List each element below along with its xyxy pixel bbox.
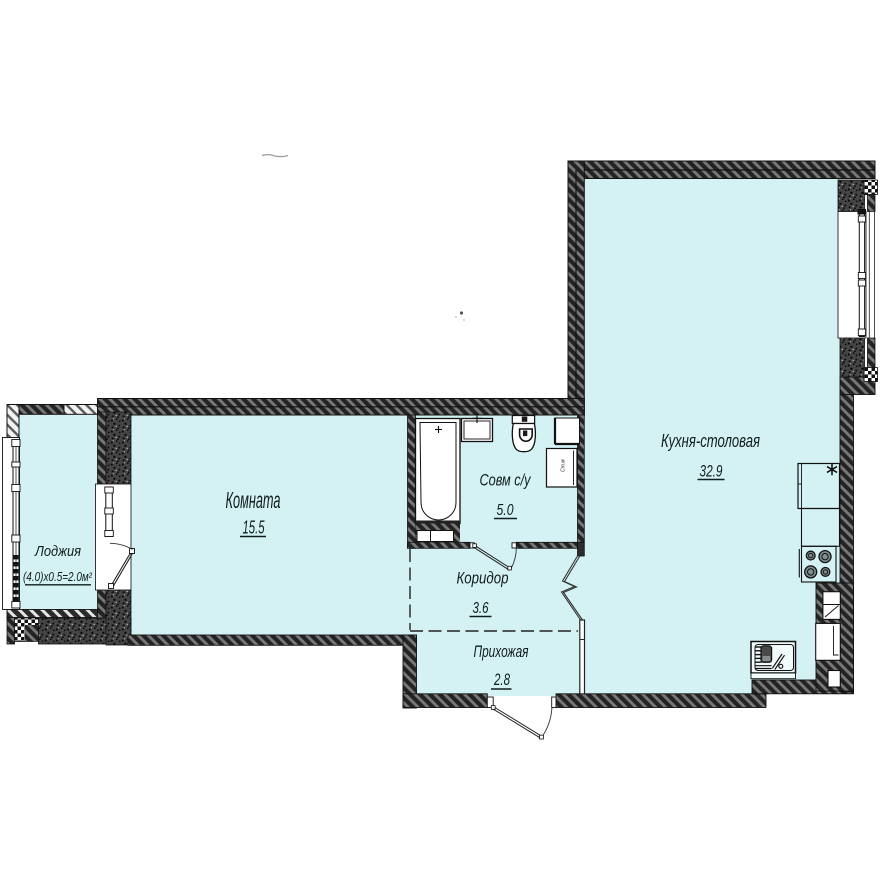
svg-text:5.0: 5.0: [497, 502, 514, 519]
svg-text:3.6: 3.6: [473, 600, 489, 617]
svg-text:15.5: 15.5: [243, 518, 266, 538]
svg-text:2.8: 2.8: [493, 671, 510, 689]
svg-text:Лоджия: Лоджия: [34, 543, 81, 560]
svg-text:Кухня-столовая: Кухня-столовая: [661, 431, 760, 451]
svg-text:Прихожая: Прихожая: [474, 642, 529, 661]
svg-text:Совм с/у: Совм с/у: [480, 471, 532, 490]
svg-text:Коридор: Коридор: [457, 569, 509, 588]
svg-text:Ст.м: Ст.м: [561, 459, 567, 472]
svg-text:32.9: 32.9: [700, 462, 723, 481]
svg-text:(4.0)х0.5=2.0м²: (4.0)х0.5=2.0м²: [23, 570, 93, 584]
svg-text:Комната: Комната: [226, 487, 281, 513]
